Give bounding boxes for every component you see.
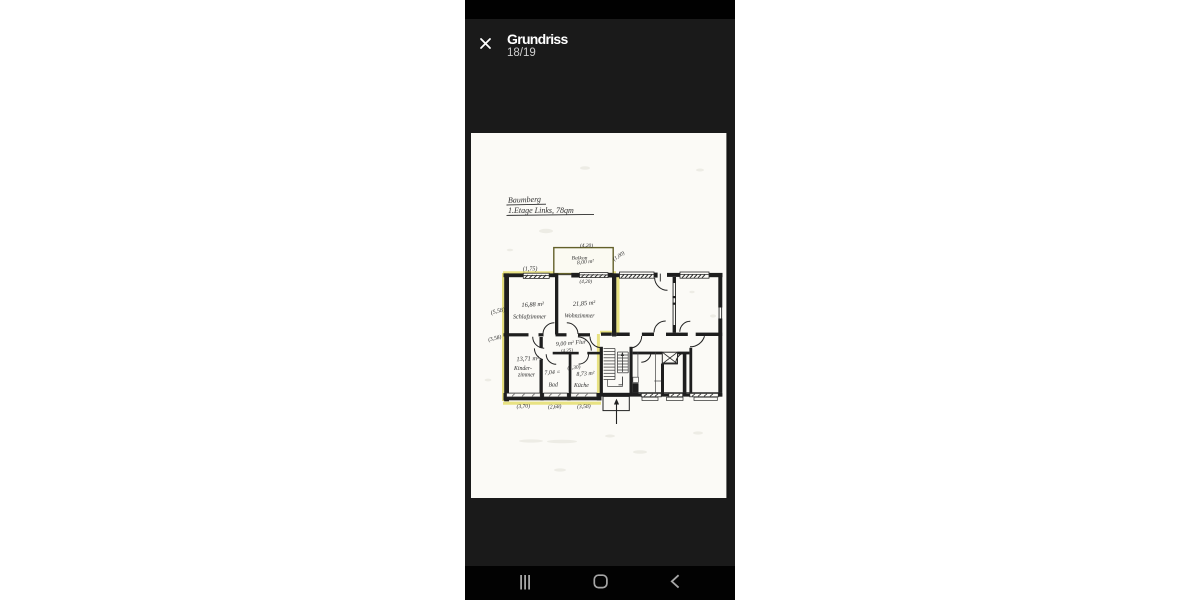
svg-text:(4,20): (4,20)	[580, 242, 593, 249]
svg-text:1.Etage Links, 78qm: 1.Etage Links, 78qm	[508, 206, 574, 215]
svg-text:(2,68): (2,68)	[548, 403, 562, 411]
svg-text:Wohnzimmer: Wohnzimmer	[565, 314, 596, 320]
svg-text:Küche: Küche	[573, 383, 589, 389]
svg-text:7,04 =: 7,04 =	[544, 368, 561, 376]
svg-text:(1,30): (1,30)	[567, 364, 581, 372]
svg-text:Kinder-: Kinder-	[513, 366, 532, 372]
svg-text:13,71 m²: 13,71 m²	[516, 355, 539, 363]
svg-text:8,73 m²: 8,73 m²	[576, 371, 595, 378]
svg-text:16,88 m²: 16,88 m²	[521, 301, 544, 309]
svg-text:(3,70): (3,70)	[516, 402, 530, 410]
svg-text:Bad: Bad	[549, 383, 558, 389]
svg-text:(4,20): (4,20)	[580, 278, 593, 285]
svg-text:Schlafzimmer: Schlafzimmer	[513, 313, 547, 320]
svg-text:zimmer: zimmer	[517, 372, 536, 378]
svg-text:(3,58): (3,58)	[577, 403, 591, 411]
svg-text:Baumberg: Baumberg	[508, 195, 541, 205]
svg-text:(1,75): (1,75)	[523, 266, 538, 273]
